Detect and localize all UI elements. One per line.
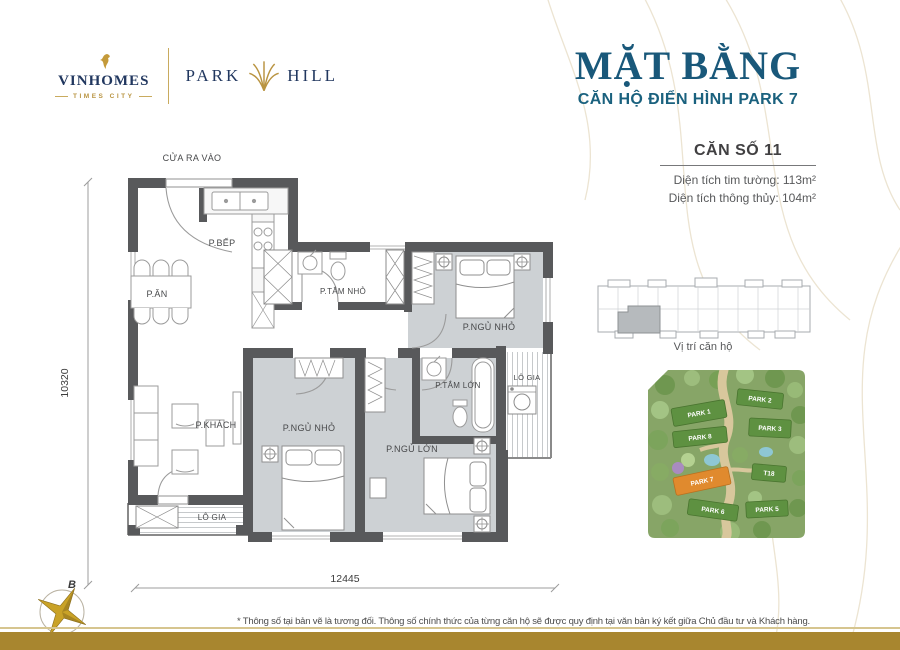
svg-text:T18: T18 [763,470,775,478]
building-park3: PARK 3 [749,418,792,438]
floor-plan: CỬA RA VÀO P.BẾP P.ĂN P.TẮM NHỎ P.NGỦ NH… [59,152,559,592]
vinhomes-logo: VINHOMES TIMES CITY [55,53,152,100]
unit-area-gross: Diện tích tim tường: 113m² [660,171,816,189]
label-entrance: CỬA RA VÀO [163,152,222,163]
svg-text:PARK 5: PARK 5 [755,506,779,514]
brand-divider [168,48,169,104]
site-map: PARK 1 PARK 2 PARK 8 PARK 3 [646,366,809,542]
label-loggia-right: LÔ GIA [514,373,541,382]
title-block: MẶT BẰNG CĂN HỘ ĐIỂN HÌNH PARK 7 [520,44,856,109]
building-position-diagram: Vị trí căn hộ [598,278,810,353]
living-furniture [134,386,241,474]
page-subtitle: CĂN HỘ ĐIỂN HÌNH PARK 7 [520,91,856,109]
gold-footer-bar [0,632,900,650]
vinhomes-wordmark: VINHOMES [58,73,149,90]
hill-wordmark: HILL [287,66,338,86]
label-loggia-left: LÔ GIA [198,513,227,522]
label-bedroom-mid: P.NGỦ NHỎ [283,422,336,433]
location-caption: Vị trí căn hộ [674,341,733,353]
gold-accent-line [0,627,900,629]
brochure-page: CỬA RA VÀO P.BẾP P.ĂN P.TẮM NHỎ P.NGỦ NH… [0,0,900,650]
bath-small-fixtures [298,250,346,280]
pond [704,454,720,466]
unit-info: CĂN SỐ 11 Diện tích tim tường: 113m² Diệ… [660,142,816,207]
disclaimer-note: * Thông số tại bản vẽ là tương đối. Thôn… [237,616,810,627]
dimension-height: 10320 [59,368,71,397]
unit-rule [660,165,816,166]
unit-area-net: Diện tích thông thủy: 104m² [660,189,816,207]
label-dining: P.ĂN [146,289,167,299]
building-park5: PARK 5 [746,500,789,518]
svg-text:PARK 3: PARK 3 [758,425,782,433]
label-bath-small: P.TẮM NHỎ [320,287,366,296]
compass-north-label: B [68,579,76,591]
label-living: P.KHÁCH [196,420,237,430]
park-hill-logo: PARK HILL [185,60,338,92]
bird-icon [93,53,115,71]
dimension-width: 12445 [330,573,359,585]
park-wordmark: PARK [185,66,241,86]
label-kitchen: P.BẾP [209,238,236,248]
page-title: MẶT BẰNG [520,44,856,88]
planter-box [136,506,178,528]
palm-icon [247,60,281,92]
washing-machine-icon [508,386,536,414]
playground [672,462,684,474]
brand-area: VINHOMES TIMES CITY PARK HILL [55,48,338,104]
unit-number: CĂN SỐ 11 [660,142,816,160]
label-bedroom-top: P.NGỦ NHỎ [463,321,516,332]
label-bath-large: P.TẮM LỚN [435,381,480,390]
label-bedroom-master: P.NGỦ LỚN [386,443,438,454]
times-city-label: TIMES CITY [55,93,152,100]
building-t18: T18 [751,464,786,483]
